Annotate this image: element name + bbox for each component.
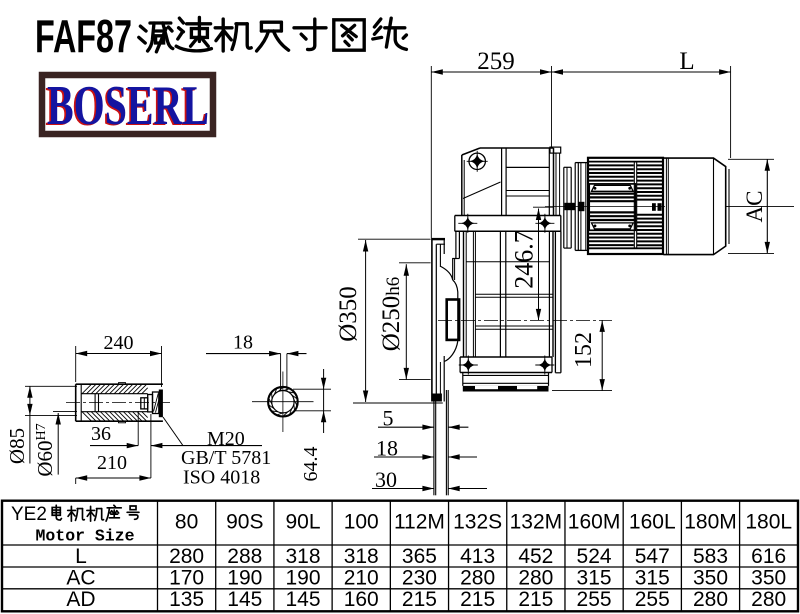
svg-text:160L: 160L — [629, 511, 676, 534]
svg-text:280: 280 — [518, 567, 553, 590]
svg-text:315: 315 — [635, 567, 670, 590]
svg-text:64.4: 64.4 — [300, 447, 322, 482]
svg-text:Motor Size: Motor Size — [35, 527, 134, 546]
svg-text:524: 524 — [577, 545, 612, 568]
svg-text:Ø350: Ø350 — [335, 286, 362, 342]
svg-text:616: 616 — [751, 545, 786, 568]
svg-text:145: 145 — [286, 588, 321, 611]
svg-text:215: 215 — [460, 588, 495, 611]
svg-text:90S: 90S — [226, 511, 263, 534]
svg-text:318: 318 — [344, 545, 379, 568]
svg-text:5: 5 — [383, 406, 394, 431]
svg-text:L: L — [75, 545, 87, 568]
svg-text:145: 145 — [227, 588, 262, 611]
svg-text:413: 413 — [460, 545, 495, 568]
svg-text:280: 280 — [693, 588, 728, 611]
svg-text:Ø60H7: Ø60H7 — [33, 423, 57, 476]
svg-text:280: 280 — [751, 588, 786, 611]
svg-text:246.7: 246.7 — [510, 230, 539, 289]
svg-text:160: 160 — [344, 588, 379, 611]
svg-text:210: 210 — [344, 567, 379, 590]
svg-text:132S: 132S — [453, 511, 502, 534]
svg-text:215: 215 — [402, 588, 437, 611]
svg-text:547: 547 — [635, 545, 670, 568]
svg-text:315: 315 — [577, 567, 612, 590]
svg-text:18: 18 — [233, 332, 253, 354]
svg-text:30: 30 — [375, 467, 397, 492]
svg-text:ISO 4018: ISO 4018 — [183, 467, 260, 489]
svg-text:BOSERL: BOSERL — [47, 75, 209, 137]
svg-text:160M: 160M — [568, 511, 621, 534]
svg-text:280: 280 — [169, 545, 204, 568]
svg-text:AC: AC — [742, 191, 767, 223]
svg-text:280: 280 — [460, 567, 495, 590]
svg-text:AD: AD — [66, 588, 95, 611]
svg-text:152: 152 — [571, 332, 597, 368]
svg-text:Ø250h6: Ø250h6 — [378, 277, 405, 352]
svg-text:80: 80 — [175, 511, 198, 534]
svg-text:350: 350 — [693, 567, 728, 590]
svg-text:255: 255 — [577, 588, 612, 611]
svg-text:90L: 90L — [286, 511, 321, 534]
svg-text:180L: 180L — [745, 511, 792, 534]
svg-text:100: 100 — [344, 511, 379, 534]
svg-text:583: 583 — [693, 545, 728, 568]
svg-text:190: 190 — [286, 567, 321, 590]
svg-text:318: 318 — [286, 545, 321, 568]
svg-text:350: 350 — [751, 567, 786, 590]
svg-text:132M: 132M — [510, 511, 563, 534]
svg-text:230: 230 — [402, 567, 437, 590]
svg-text:180M: 180M — [684, 511, 737, 534]
svg-text:AC: AC — [66, 567, 95, 590]
svg-text:365: 365 — [402, 545, 437, 568]
svg-text:135: 135 — [169, 588, 204, 611]
svg-text:259: 259 — [477, 48, 515, 75]
svg-text:L: L — [679, 48, 694, 75]
svg-text:FAF87: FAF87 — [35, 10, 132, 62]
svg-text:36: 36 — [91, 423, 111, 445]
svg-text:240: 240 — [104, 332, 134, 354]
svg-text:112M: 112M — [394, 511, 445, 534]
svg-text:255: 255 — [635, 588, 670, 611]
svg-text:18: 18 — [376, 436, 398, 461]
svg-text:210: 210 — [97, 452, 127, 474]
svg-text:YE2: YE2 — [11, 504, 47, 525]
svg-text:452: 452 — [518, 545, 553, 568]
svg-text:288: 288 — [227, 545, 262, 568]
svg-text:Ø85: Ø85 — [5, 428, 29, 464]
svg-text:215: 215 — [518, 588, 553, 611]
svg-text:190: 190 — [227, 567, 262, 590]
svg-text:170: 170 — [169, 567, 204, 590]
